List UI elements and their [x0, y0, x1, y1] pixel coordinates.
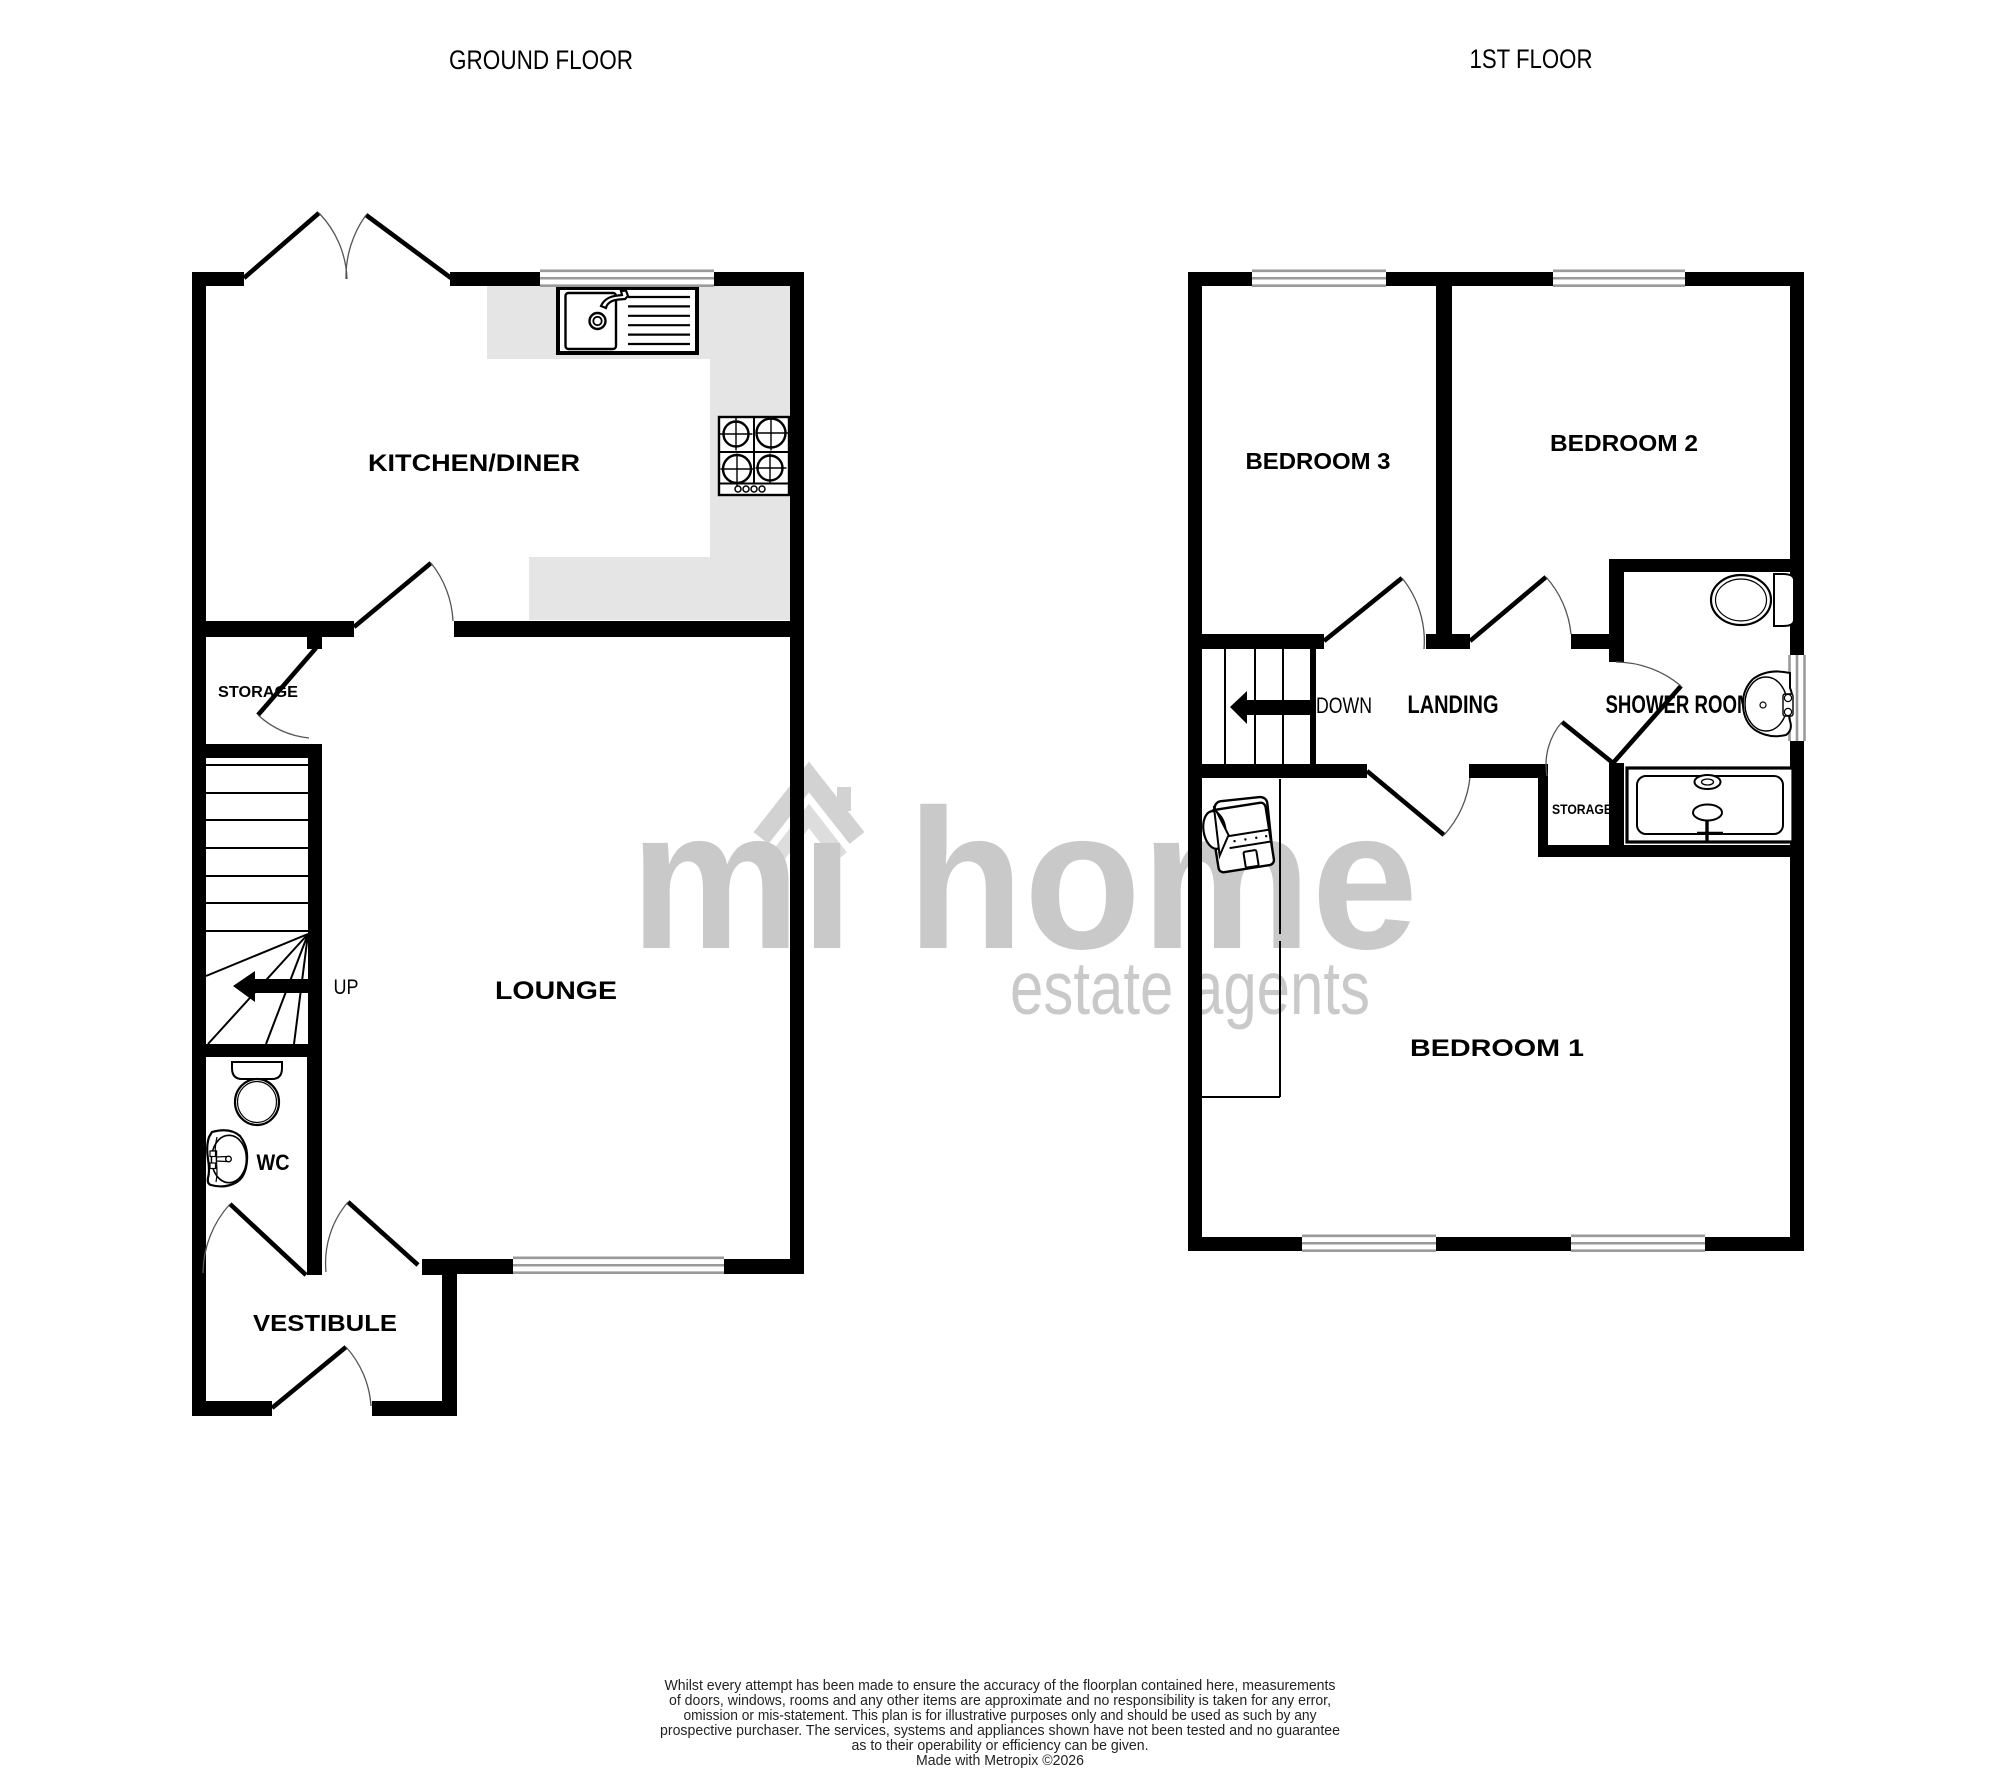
svg-text:Made with Metropix ©2026: Made with Metropix ©2026	[916, 1753, 1084, 1769]
svg-text:STORAGE: STORAGE	[1552, 801, 1612, 817]
svg-text:BEDROOM 2: BEDROOM 2	[1550, 430, 1698, 456]
svg-text:SHOWER ROOM: SHOWER ROOM	[1606, 691, 1753, 719]
svg-text:LOUNGE: LOUNGE	[495, 977, 617, 1005]
svg-text:KITCHEN/DINER: KITCHEN/DINER	[368, 450, 580, 477]
svg-text:Whilst every attempt has been: Whilst every attempt has been made to en…	[665, 1678, 1336, 1694]
svg-text:of doors, windows, rooms and a: of doors, windows, rooms and any other i…	[669, 1693, 1331, 1709]
svg-text:BEDROOM 3: BEDROOM 3	[1246, 448, 1391, 474]
svg-text:omission or mis-statement. Thi: omission or mis-statement. This plan is …	[684, 1708, 1318, 1724]
svg-text:STORAGE: STORAGE	[218, 684, 298, 701]
svg-text:BEDROOM 1: BEDROOM 1	[1410, 1035, 1584, 1062]
svg-text:VESTIBULE: VESTIBULE	[253, 1310, 397, 1336]
svg-text:DOWN: DOWN	[1316, 693, 1372, 718]
svg-text:LANDING: LANDING	[1408, 691, 1499, 719]
svg-text:prospective purchaser. The ser: prospective purchaser. The services, sys…	[660, 1723, 1340, 1739]
svg-text:1ST FLOOR: 1ST FLOOR	[1470, 44, 1593, 74]
svg-text:as to their operability or eff: as to their operability or efficiency ca…	[852, 1738, 1149, 1754]
svg-text:WC: WC	[257, 1150, 290, 1175]
svg-text:GROUND FLOOR: GROUND FLOOR	[449, 45, 633, 75]
svg-text:UP: UP	[334, 976, 359, 999]
